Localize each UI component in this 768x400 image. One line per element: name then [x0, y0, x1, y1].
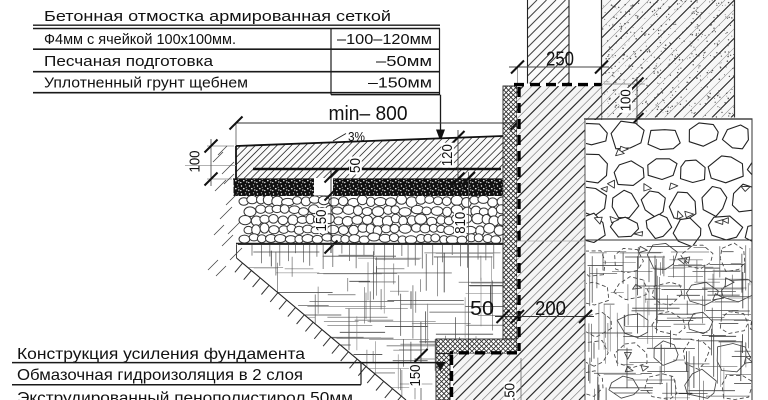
svg-text:–50мм: –50мм	[376, 54, 432, 70]
svg-text:–150мм: –150мм	[368, 75, 432, 91]
svg-text:Ф4мм с ячейкой 100х100мм.: Ф4мм с ячейкой 100х100мм.	[44, 32, 236, 48]
svg-text:150: 150	[502, 383, 519, 400]
svg-text:Песчаная подготовка: Песчаная подготовка	[44, 54, 214, 70]
svg-text:810: 810	[452, 212, 469, 234]
svg-text:200: 200	[535, 298, 566, 320]
svg-text:250: 250	[546, 48, 574, 70]
svg-text:Конструкция усиления фундамент: Конструкция усиления фундамента	[17, 346, 305, 363]
svg-text:50: 50	[347, 158, 364, 173]
svg-text:50: 50	[470, 298, 494, 320]
svg-text:min– 800: min– 800	[329, 103, 408, 125]
svg-text:Экструдированный пенополистиро: Экструдированный пенополистирол 50мм	[17, 390, 353, 400]
svg-text:–100–120мм: –100–120мм	[337, 32, 432, 48]
svg-text:100: 100	[187, 151, 204, 173]
svg-text:100: 100	[617, 89, 634, 111]
svg-text:120: 120	[439, 144, 456, 166]
svg-text:150: 150	[313, 210, 330, 232]
svg-text:150: 150	[407, 365, 424, 387]
svg-text:Бетонная отмостка армированная: Бетонная отмостка армированная сеткой	[44, 9, 391, 25]
svg-text:Уплотненный грунт щебнем: Уплотненный грунт щебнем	[44, 75, 248, 91]
svg-text:Обмазочная гидроизоляция в 2 с: Обмазочная гидроизоляция в 2 слоя	[17, 367, 303, 384]
svg-text:3%: 3%	[348, 130, 365, 144]
